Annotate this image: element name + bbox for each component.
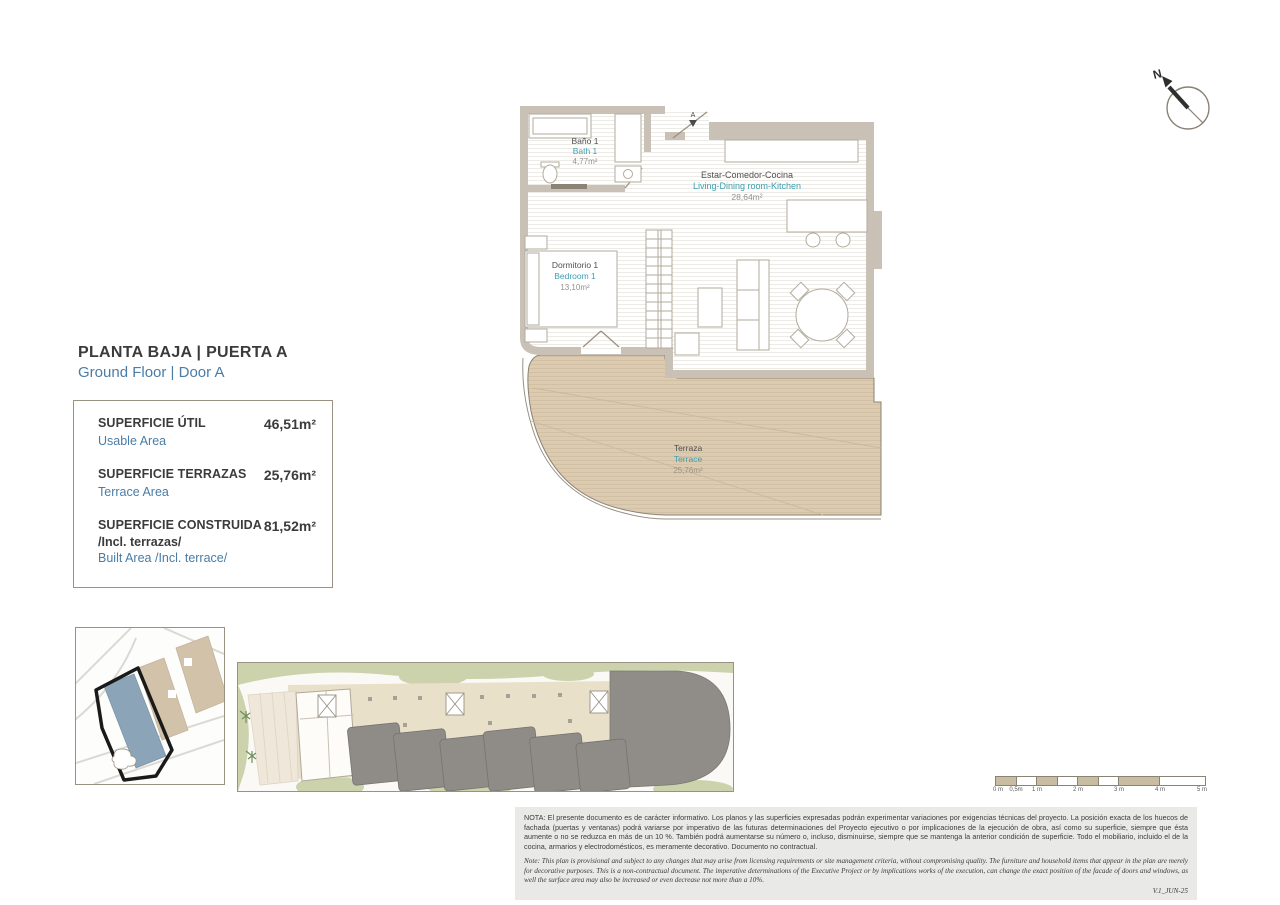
scale-tick-label: 2 m [1073,787,1083,793]
room-label-terrace-en: Terrace [674,454,703,464]
room-area-bath: 4,77m² [573,157,598,166]
room-label-terrace-es: Terraza [674,443,703,453]
room-area-living: 28,64m² [731,192,762,202]
bath-cabinet [615,114,641,162]
nightstand [525,329,547,342]
plan-sheet: N [0,0,1280,905]
kitchen-counter [725,140,858,162]
building-key-plan [237,662,734,792]
stool [836,233,850,247]
side-table [698,288,722,327]
title-block: PLANTA BAJA | PUERTA A Ground Floor | Do… [78,344,288,381]
area-row: SUPERFICIE CONSTRUIDA 81,52m² /Incl. ter… [74,518,332,565]
room-label-bath-es: Baño 1 [572,136,599,146]
notes-block: NOTA: El presente documento es de caráct… [515,807,1197,900]
scale-tick-label: 1 m [1032,787,1042,793]
scale-tick-label: 0,5m [1009,787,1022,793]
dining-table [796,289,848,341]
area-value: 46,51m² [264,416,316,432]
version-label: V.1_JUN-25 [524,887,1188,895]
north-compass: N [1152,62,1220,138]
legal-note-en: Note: This plan is provisional and subje… [524,857,1188,886]
scale-bar-segments [995,776,1206,786]
legal-note-es: NOTA: El presente documento es de caráct… [524,813,1188,851]
area-label-en: Usable Area [98,434,316,448]
nightstand [525,236,547,249]
area-row: SUPERFICIE TERRAZAS 25,76m² Terrace Area [74,467,332,499]
page-title: PLANTA BAJA | PUERTA A [78,344,288,362]
room-label-bedroom-es: Dormitorio 1 [552,260,599,270]
sofa [737,260,769,350]
wardrobe [646,230,672,348]
kitchen-island [787,200,867,232]
room-label-living-en: Living-Dining room-Kitchen [693,181,801,191]
area-label-en: Terrace Area [98,485,316,499]
toilet [543,165,557,183]
tv-bench [675,333,699,355]
scale-tick-label: 0 m [993,787,1003,793]
room-label-living-es: Estar-Comedor-Cocina [701,170,793,180]
north-arrowhead-icon [1162,76,1173,88]
area-summary-box: SUPERFICIE ÚTIL 46,51m² Usable Area SUPE… [73,400,333,588]
floor-plan: A Baño 1 Bath 1 4,77m² Estar-Comedor-Coc… [513,96,893,526]
area-label-es-extra: /Incl. terrazas/ [98,535,316,549]
area-label-es: SUPERFICIE TERRAZAS [98,467,246,481]
area-value: 81,52m² [264,518,316,534]
area-label-es: SUPERFICIE ÚTIL [98,416,206,430]
site-location-map [75,627,225,785]
room-area-bedroom: 13,10m² [560,283,590,292]
north-label: N [1152,66,1163,82]
bed-pillow [527,253,539,325]
scale-bar-labels: 0 m 0,5m 1 m 2 m 3 m 4 m 5 m [995,787,1206,796]
area-label-en: Built Area /Incl. terrace/ [98,551,316,565]
room-area-terrace: 25,76m² [673,466,703,475]
entrance-door-label: A [691,112,696,119]
scale-tick-label: 5 m [1197,787,1207,793]
room-label-bedroom-en: Bedroom 1 [554,271,596,281]
scale-tick-label: 4 m [1155,787,1165,793]
stool [806,233,820,247]
room-label-bath-en: Bath 1 [573,146,598,156]
page-subtitle: Ground Floor | Door A [78,364,288,381]
radiator [551,184,587,189]
scale-tick-label: 3 m [1114,787,1124,793]
area-value: 25,76m² [264,467,316,483]
north-arrow-icon [1169,87,1188,108]
area-label-es: SUPERFICIE CONSTRUIDA [98,518,262,532]
terrace-area [523,355,881,519]
scale-bar: 0 m 0,5m 1 m 2 m 3 m 4 m 5 m [995,776,1206,796]
area-row: SUPERFICIE ÚTIL 46,51m² Usable Area [74,416,332,448]
